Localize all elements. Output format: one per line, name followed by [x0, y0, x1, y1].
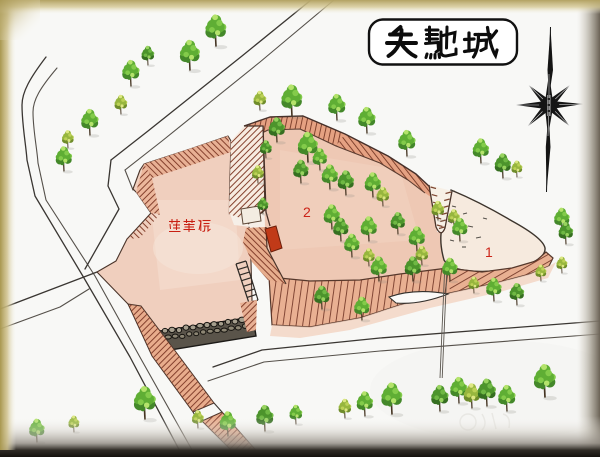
svg-text:1: 1 — [485, 244, 493, 260]
svg-text:2: 2 — [303, 204, 311, 220]
